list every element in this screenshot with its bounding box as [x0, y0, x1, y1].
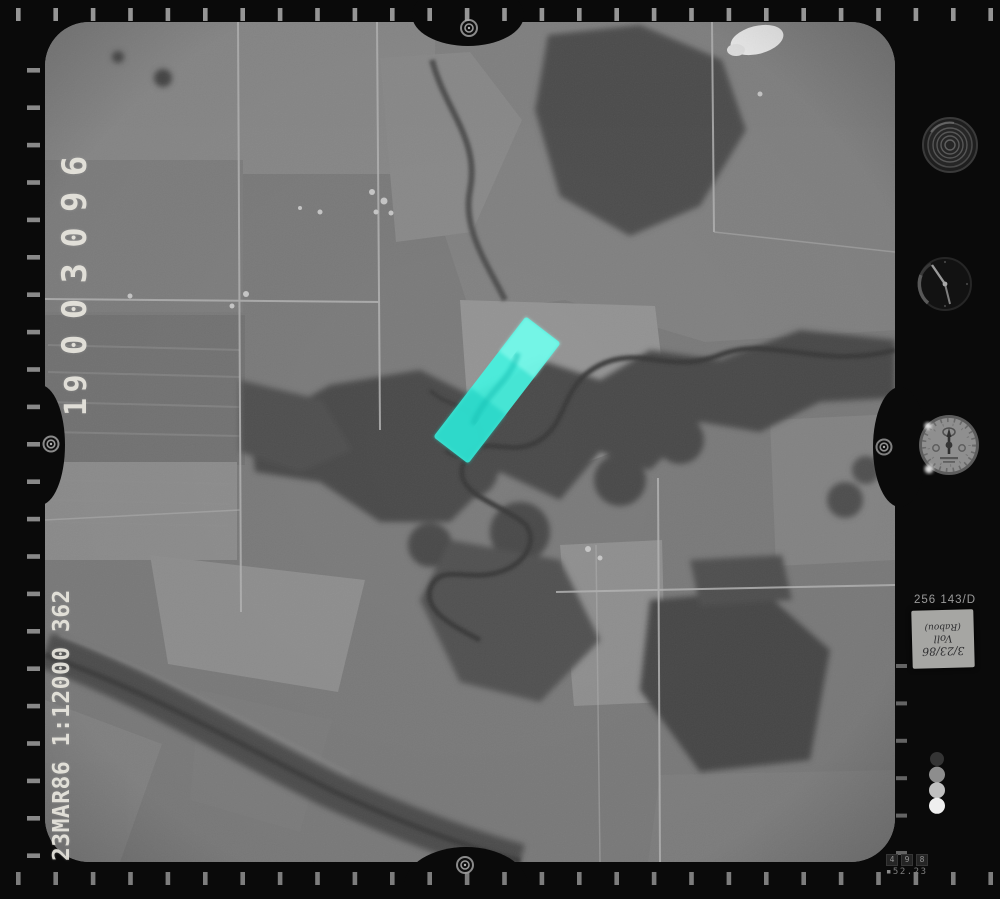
fiducial-right: [877, 440, 892, 455]
level-dial: [923, 118, 977, 172]
frame-prefix: 19: [59, 369, 94, 416]
step-wedge-dot: [929, 798, 945, 814]
counter-reading: ▪52.23: [886, 867, 928, 877]
handwritten-line-date: 3/23/86: [912, 643, 974, 658]
fiducial-left: [44, 437, 59, 452]
frame-counter: 4 9 8 ▪52.23: [886, 854, 928, 877]
step-wedge-dot: [929, 767, 945, 783]
counter-digit-cells: 4 9 8: [886, 854, 928, 866]
printed-label: 256 143/D: [908, 594, 982, 606]
frame-number: 003096: [55, 140, 95, 355]
counter-digit: 8: [916, 854, 928, 866]
frame-number-annotation: 19003096: [55, 140, 95, 416]
step-wedge-dot: [930, 752, 944, 766]
data-card: 3/23/86 Voll (Rabou): [911, 609, 974, 669]
handwritten-line-note: (Rabou): [912, 619, 974, 632]
handwritten-line-name: Voll: [912, 631, 974, 645]
fiducial-top: [461, 20, 477, 36]
fiducial-bottom: [457, 857, 473, 873]
handwritten-note: 3/23/86 Voll (Rabou): [912, 619, 975, 658]
step-wedge-dot: [929, 782, 945, 798]
film-frame-graphic: [0, 0, 1000, 899]
clock-dial: [919, 258, 971, 310]
step-wedge: [929, 752, 945, 814]
counter-digit: 9: [901, 854, 913, 866]
altimeter-dial: [919, 415, 979, 475]
flight-info-annotation: 23MAR86 1:12000 362: [49, 589, 75, 861]
film-scan: 19003096 23MAR86 1:12000 362 256 143/D 3…: [0, 0, 1000, 899]
counter-digit: 4: [886, 854, 898, 866]
aerial-photo: [45, 20, 895, 862]
